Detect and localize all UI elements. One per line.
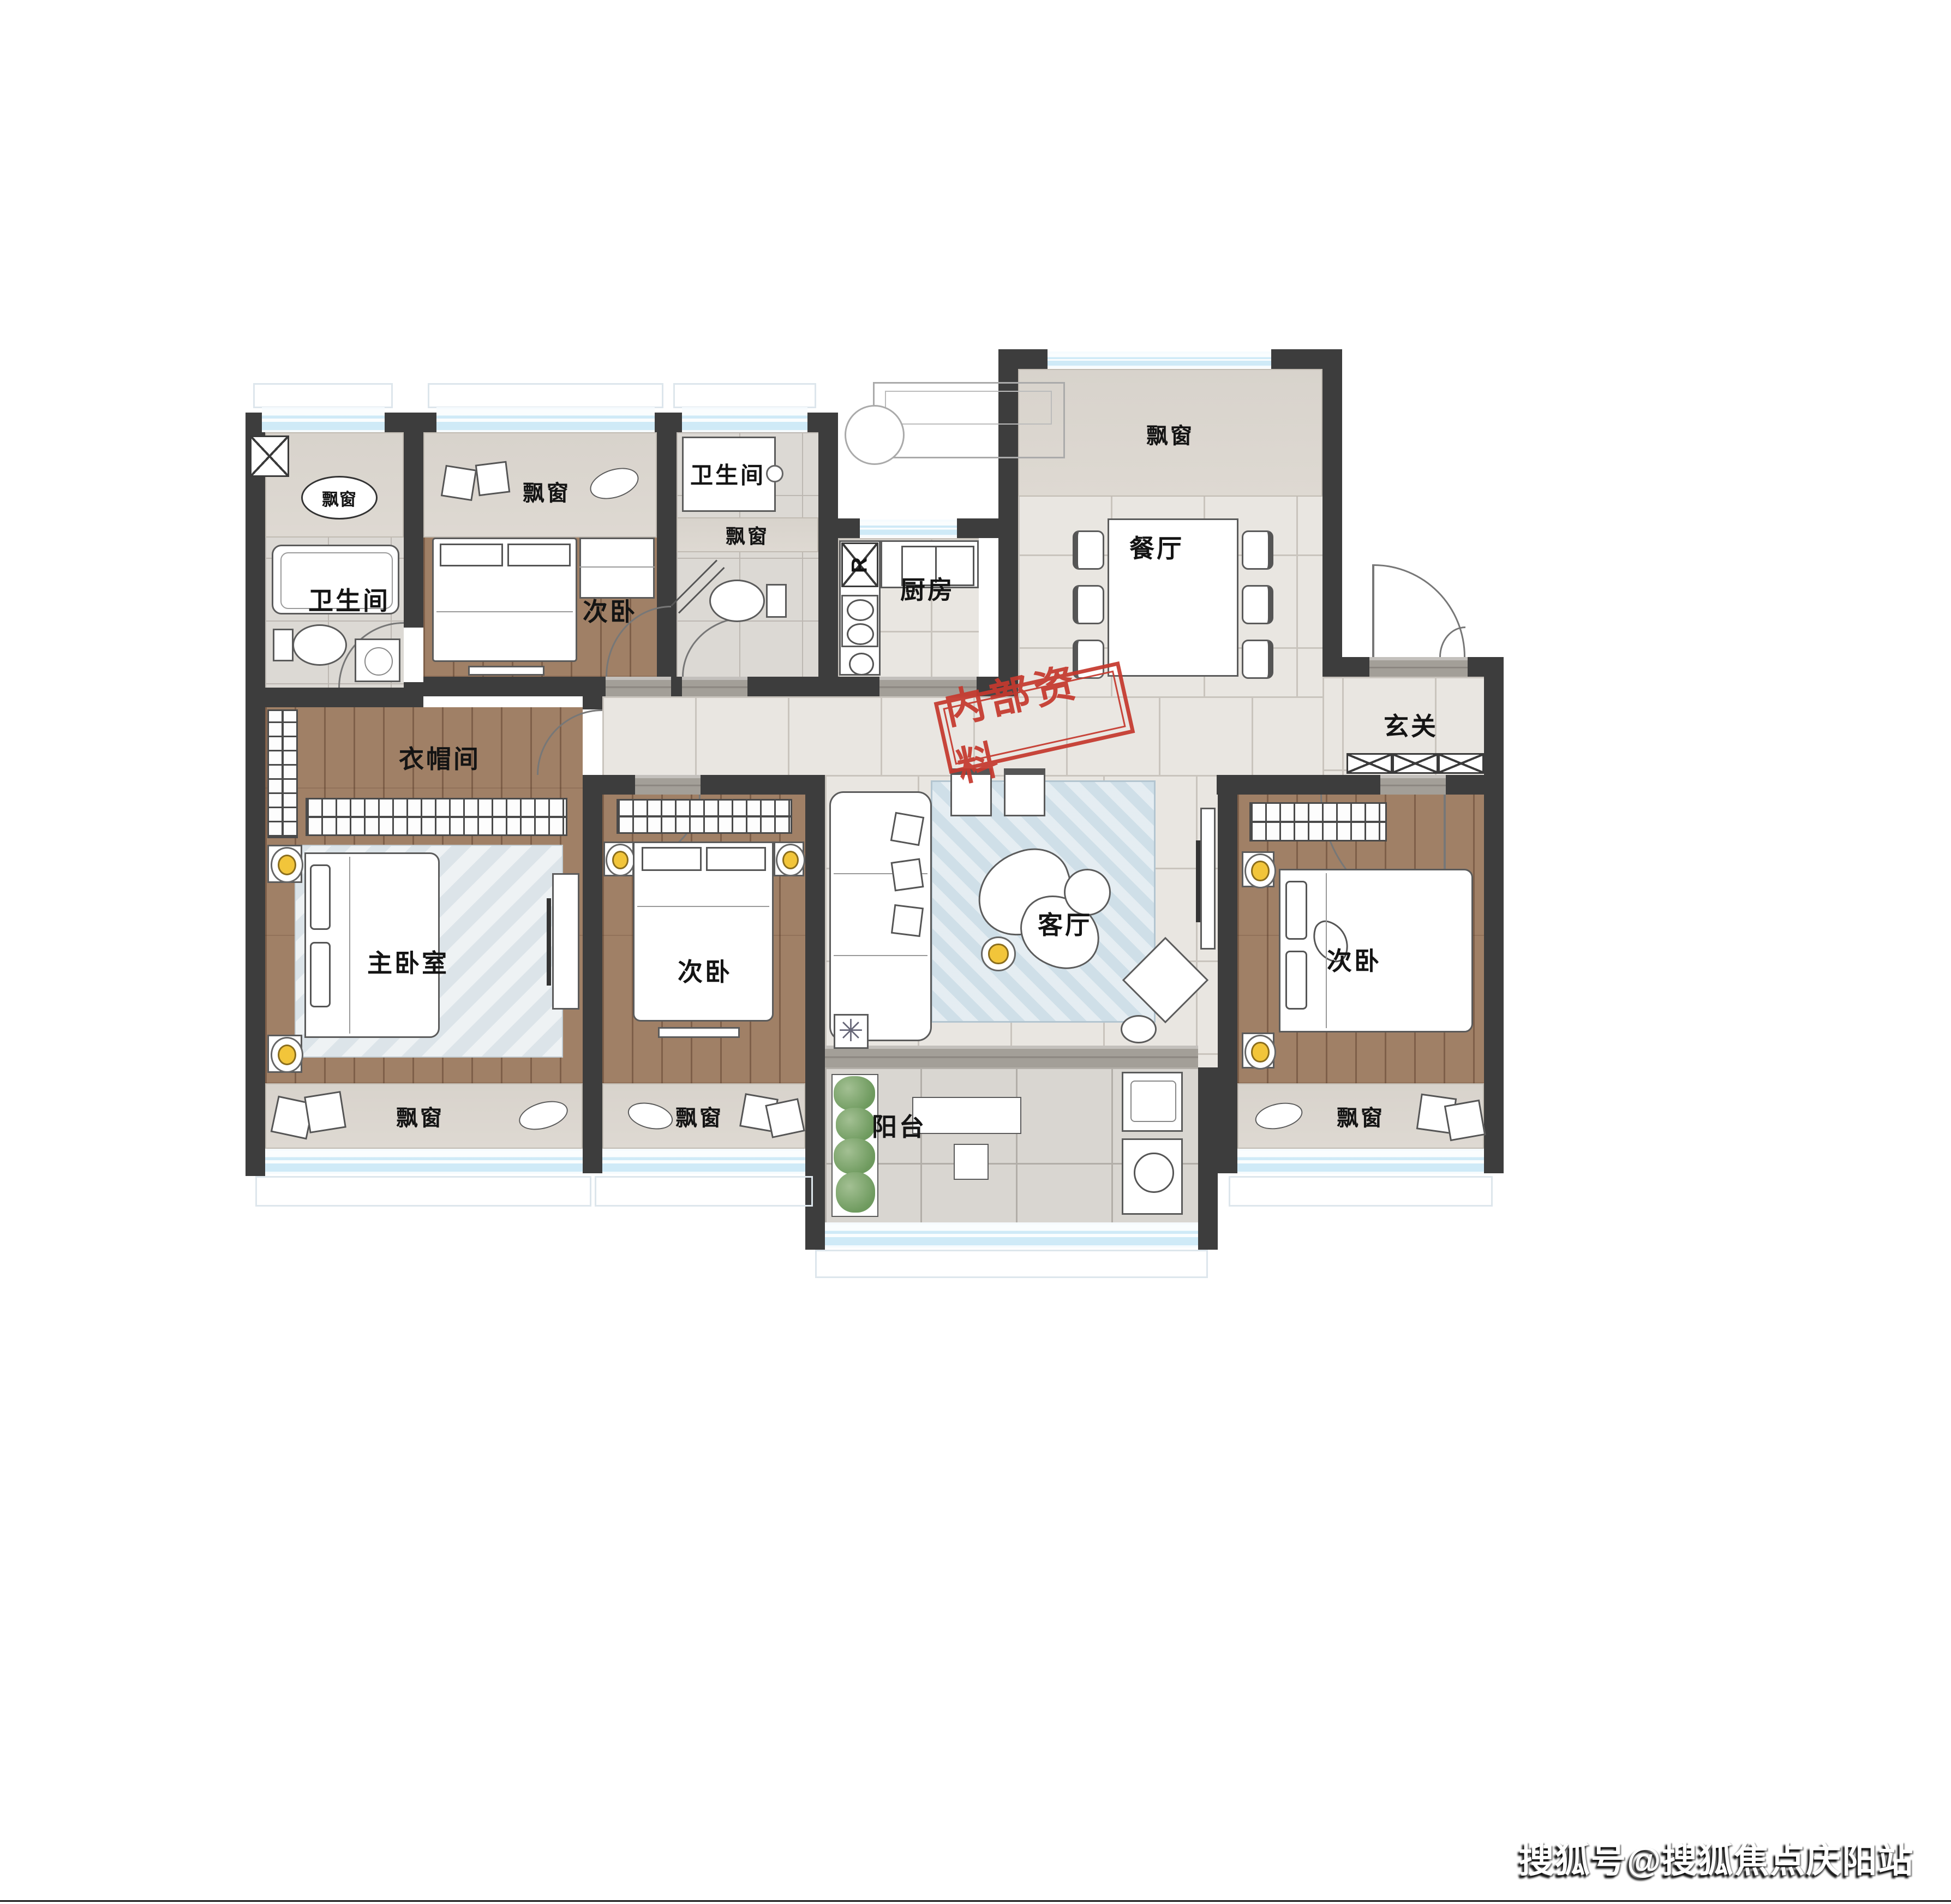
wall-entry-top-l [1322,657,1369,677]
bed1-blanket-line [436,611,573,612]
bed3-pillow-1 [1285,881,1307,940]
bay-window-label: 飘窗 [1337,1100,1385,1132]
room-label-bedroom-right: 次卧 [1327,941,1381,977]
room-label-bathroom-top-left: 卫生间 [308,581,390,617]
dining-chair-l1 [1073,530,1104,570]
sill-balcony [815,1250,1208,1278]
wall-kitchen-top-l [838,518,860,538]
window-bed3-bay [1237,1149,1484,1174]
sill-bath1 [253,383,393,408]
wall-suite-divider-b [583,775,602,1173]
wall-corridor-top-a [423,677,606,696]
wall-entry-top-r [1468,657,1504,677]
threshold-bed2-door [635,775,701,795]
bed3-wardrobe [1249,802,1387,841]
living-tv-console [1200,808,1216,950]
kitchen-fridge-letter: R [848,557,872,573]
wall-suite-divider-a [583,677,602,709]
window-balcony [825,1222,1198,1248]
bed1-bench [468,666,544,676]
master-pillow-2 [310,942,331,1007]
window-master-bay [265,1149,583,1174]
room-label-master: 主卧室 [367,944,449,980]
wall-corridor-top-c [747,677,879,696]
threshold-bath2-door [682,677,747,696]
entry-shoe-cabinet-cell [1392,753,1438,774]
wall-left-outer [246,413,265,1176]
floor-plan: R [0,0,1951,1904]
living-sofa-line2 [834,955,927,956]
bay-window-label: 飘窗 [322,486,357,510]
bay-window-label: 飘窗 [675,1100,723,1132]
wall-kitchen-west [818,432,838,696]
bed2-blanket-line [637,906,769,907]
internal-material-stamp: 内部资料 [934,661,1135,774]
corridor-bridge [1322,677,1342,775]
wall-bed2-top-a [602,775,635,795]
bay-window-label: 飘窗 [396,1100,444,1132]
wall-bed3-top-b [1446,775,1504,795]
master-lamp-top [271,847,303,883]
wall-bed3-top-a [1217,775,1380,795]
wall-bath1-south [246,688,423,707]
window-bath1-bay [262,407,385,432]
dining-chair-r3 [1242,640,1273,679]
room-label-entry: 玄关 [1384,707,1438,743]
wall-kitchen-top-r [957,518,998,538]
balcony-plant-3 [834,1138,875,1174]
wall-bed3-west [1218,795,1237,1173]
wall-dining-top-l [998,349,1048,369]
threshold-bed3-door [1380,775,1446,795]
master-bay-pillow-2 [304,1091,346,1133]
kitchen-burner-2 [847,623,874,645]
threshold-balcony-slider [825,1046,1198,1067]
threshold-bed1-door [606,677,671,696]
bed3-pillow-2 [1285,951,1307,1010]
bed1-bay-pillow-2 [475,461,511,497]
bed1-wardrobe [579,538,655,599]
living-sofa-pillow-2 [891,858,924,892]
bath1-sink-basin [364,647,393,676]
cloakroom-hanging-rail [306,798,567,836]
room-label-living: 客厅 [1038,905,1092,941]
balcony-sink-basin [1130,1081,1176,1122]
bath1-toilet-tank [273,629,294,661]
page-bottom-line [0,1900,1951,1902]
living-sofa-pillow-3 [891,904,924,937]
window-bed2-bay [602,1149,805,1174]
window-dining [1048,351,1271,368]
balcony-washer-drum [1134,1153,1174,1193]
bay-window-label: 飘窗 [726,521,769,549]
master-pillow-1 [310,864,331,930]
living-small-ellipse [1121,1015,1157,1043]
room-label-cloakroom: 衣帽间 [399,739,481,775]
room-label-kitchen: 厨房 [900,570,955,606]
entry-shoe-cabinet-cell [1438,753,1484,774]
master-blanket-line [349,857,350,1034]
bay-window-label: 飘窗 [1146,418,1194,450]
wall-bed2-top-b [701,775,825,795]
wall-dining-east [1322,349,1342,657]
bed2-bay-pillow-2 [765,1098,805,1138]
ac-fan [845,405,905,465]
bath2-faucet [766,465,783,482]
room-label-balcony: 阳台 [872,1107,926,1143]
balcony-plant-2 [836,1108,875,1142]
shaft-icon [250,435,289,477]
bath2-toilet-tank [766,584,787,618]
master-lamp-bottom [271,1037,303,1073]
bay-label-oval: 飘窗 [301,476,378,520]
wall-right-outer [1484,677,1504,1173]
room-label-bathroom-mid: 卫生间 [690,457,765,491]
entry-shoe-cabinet-cell [1346,753,1392,774]
watermark-text: 搜狐号@搜狐焦点庆阳站 [1519,1833,1914,1883]
balcony-table [912,1097,1021,1134]
master-tv-board [552,873,579,1010]
wall-bath1-east-a [404,432,423,628]
bed1-wardrobe-line [579,566,655,568]
room-label-bedroom-top: 次卧 [583,592,637,628]
entry-shoe-cabinet [1346,753,1484,774]
snowflake-icon: ✳ [838,1013,864,1049]
window-bed1-bay [436,407,655,432]
window-kitchen [860,520,957,537]
bed2-lamp-l [606,844,635,876]
master-tv [547,898,551,986]
room-label-bedroom-mid: 次卧 [678,952,732,988]
wall-bath1-east-b [404,682,423,688]
room-label-dining: 餐厅 [1129,529,1184,565]
bed2-pillow-1 [642,847,702,871]
balcony-plant-1 [834,1076,875,1111]
bed3-lamp-bottom [1244,1035,1276,1070]
bed2-lamp-r [776,844,805,876]
bath1-toilet-bowl [292,624,347,666]
balcony-plant-4 [836,1172,875,1213]
bed3-bay-pillow-2 [1444,1100,1486,1141]
balcony-stool [954,1144,989,1180]
kitchen-prep-sink [849,653,874,676]
bed1-pillow-2 [507,544,571,566]
sill-bed3 [1229,1176,1493,1207]
bay-window-label: 飘窗 [523,475,571,507]
entry-door-leaf [1372,564,1374,657]
bed1-pillow-1 [440,544,503,566]
sill-bath2 [673,383,816,408]
threshold-entry-door [1369,657,1468,677]
bed2-wardrobe [617,799,792,834]
kitchen-burner-1 [847,599,874,621]
dining-chair-r2 [1242,585,1273,624]
cloakroom-shelf-left [267,709,298,838]
ac-platform-inner [885,391,1052,425]
dining-chair-r1 [1242,530,1273,570]
window-bath2-bay [682,407,807,432]
sill-master [255,1176,591,1207]
bed2-pillow-2 [706,847,766,871]
living-tv [1196,840,1200,922]
living-sofa-pillow-1 [890,812,925,846]
bed1-bay-pillow-1 [441,465,477,501]
bed3-lamp-top [1244,853,1276,888]
wall-balcony-east [1198,1067,1218,1250]
living-floor-lamp [981,936,1016,971]
sill-bed1 [428,383,663,408]
bath2-toilet-bowl [709,580,765,622]
wall-corridor-top-b [671,677,682,696]
bed2-bench [658,1027,740,1038]
dining-chair-l2 [1073,585,1104,624]
sill-bed2 [595,1176,813,1207]
